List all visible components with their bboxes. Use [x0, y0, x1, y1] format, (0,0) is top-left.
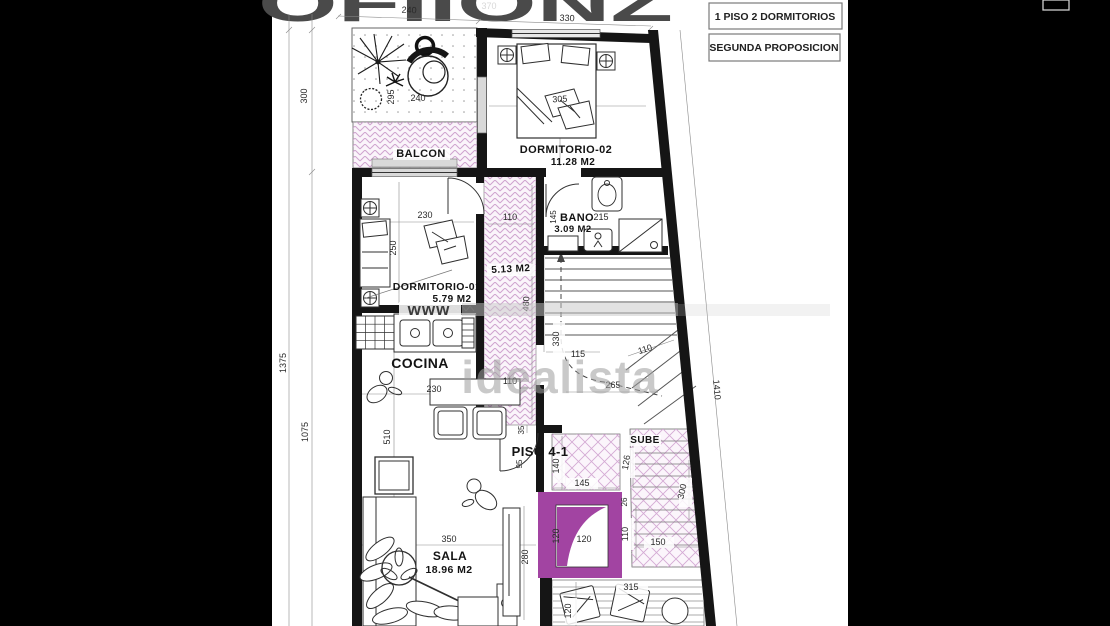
room-area-bano: 3.09 M2 [554, 224, 591, 235]
dim-label: 1410 [711, 379, 723, 400]
room-label-bano: BANO [560, 212, 594, 224]
dim-label: 280 [520, 549, 530, 564]
dim-label: 240 [410, 93, 425, 103]
side-table-icon [375, 457, 413, 494]
room-area-dorm2: 11.28 M2 [551, 157, 595, 168]
deck-table [662, 598, 688, 624]
dim-label: 145 [574, 478, 589, 488]
dim-label: 110 [503, 212, 517, 222]
sink-basin-icon [433, 320, 463, 346]
dim-label: 145 [549, 210, 558, 224]
logo-dim-label: 370 [481, 1, 496, 11]
room-area-sala: 18.96 M2 [426, 564, 473, 576]
label-piso: PISO 4-1 [512, 444, 569, 459]
dim-label: 510 [382, 429, 392, 444]
title-box-2-label: SEGUNDA PROPOSICION [709, 42, 838, 54]
watermark-smear [462, 303, 678, 316]
dim-label: 295 [386, 89, 396, 104]
room-label-dorm2: DORMITORIO-02 [520, 144, 612, 156]
dim-label: 315 [623, 582, 638, 592]
tv-stand-icon [458, 597, 498, 626]
room-label-dorm1: DORMITORIO-01 [393, 281, 481, 293]
room-label-cocina: COCINA [391, 355, 449, 371]
label-sube: SUBE [630, 435, 659, 446]
dim-label: 120 [576, 534, 591, 544]
dim-label: 120 [563, 603, 573, 618]
dim-label: 300 [299, 88, 309, 103]
room-label-balcon: BALCON [396, 148, 445, 160]
cropped-corner-box [1043, 0, 1069, 10]
floor-plan: OFIIONZ 370 [0, 0, 1110, 626]
dim-label: 330 [559, 13, 574, 24]
dim-label: 240 [401, 5, 416, 16]
dim-label: 250 [388, 240, 398, 255]
terrace-garden [352, 28, 477, 122]
dim-label: 330 [551, 331, 561, 346]
dim-label: 230 [426, 384, 441, 394]
room-label-sala: SALA [433, 549, 467, 563]
dim-label: 95 [515, 459, 524, 468]
window-dorm2-side-icon [478, 77, 487, 133]
title-box-1-label: 1 PISO 2 DORMITORIOS [715, 11, 836, 23]
dim-label: 140 [551, 458, 561, 473]
dim-label: 1375 [278, 353, 288, 373]
dim-label: 26 [620, 497, 629, 506]
dim-label: 215 [593, 212, 608, 222]
dim-label: 35 [517, 425, 526, 434]
dim-label: 1075 [300, 422, 310, 442]
watermark-www: www [407, 300, 451, 319]
watermark-idealista: idealista [461, 351, 659, 403]
dish-rack-icon [462, 318, 474, 348]
dim-label: 350 [441, 534, 456, 544]
sink-basin-icon [400, 320, 430, 346]
vanity-icon [548, 236, 578, 251]
dim-label: 120 [551, 528, 561, 543]
dim-label: 110 [620, 527, 630, 541]
dim-label: 305 [552, 94, 568, 105]
dim-label: 230 [417, 210, 432, 220]
sliding-panel-icon [503, 508, 520, 616]
screenshot-stage: OFIIONZ 370 [0, 0, 1110, 626]
balcony-sill [372, 159, 457, 167]
dim-label: 150 [650, 537, 665, 547]
room-area-pasillo: 5.13 M2 [491, 263, 530, 276]
